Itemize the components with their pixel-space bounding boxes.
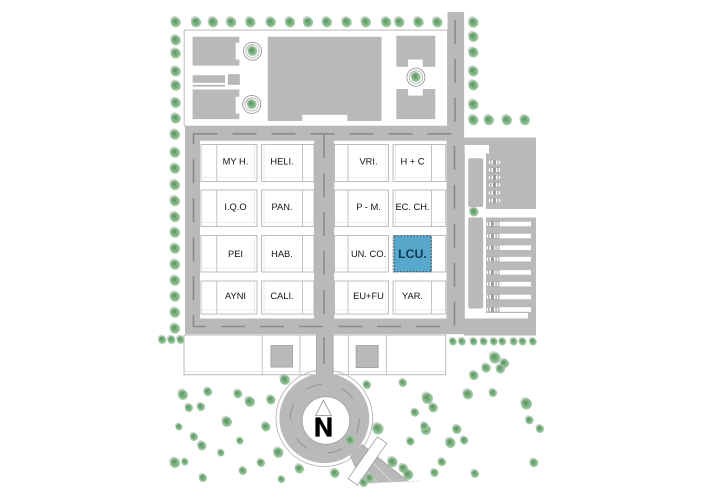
svg-text:VRI.: VRI. [359, 157, 377, 167]
svg-text:MY H.: MY H. [223, 157, 249, 167]
svg-text:HELI.: HELI. [270, 157, 293, 167]
svg-text:PEI: PEI [228, 249, 243, 259]
svg-text:PAN.: PAN. [271, 202, 292, 212]
svg-text:EC. CH.: EC. CH. [395, 202, 429, 212]
svg-text:CALI.: CALI. [270, 291, 293, 301]
svg-text:HAB.: HAB. [271, 249, 293, 259]
svg-text:YAR.: YAR. [402, 291, 423, 301]
svg-text:LCU.: LCU. [398, 247, 427, 261]
svg-text:I.Q.O: I.Q.O [224, 202, 246, 212]
svg-text:P - M.: P - M. [356, 202, 381, 212]
svg-text:H + C: H + C [400, 157, 424, 167]
svg-text:AYNI: AYNI [225, 291, 246, 301]
svg-text:EU+FU: EU+FU [353, 291, 384, 301]
svg-text:UN. CO.: UN. CO. [351, 249, 386, 259]
